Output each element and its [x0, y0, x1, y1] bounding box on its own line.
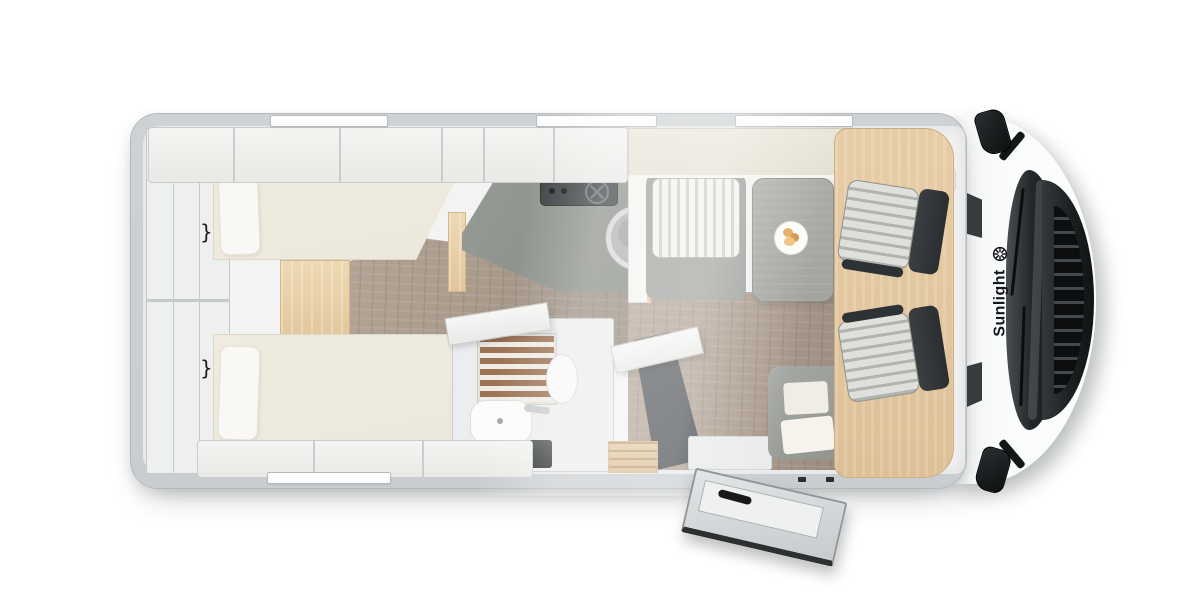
entry-step — [783, 381, 829, 415]
cabinet-divider — [233, 128, 235, 182]
wooden-steps — [608, 441, 658, 473]
plate-with-food — [775, 222, 807, 254]
pillow — [217, 345, 260, 440]
window-marker — [267, 472, 391, 484]
croissant — [784, 237, 795, 246]
door-hinge-icon — [798, 477, 806, 482]
brand-label: Sunlight — [958, 260, 1044, 346]
cabinet-divider — [483, 128, 485, 182]
grille-icon — [1054, 206, 1084, 394]
bedroom-step — [280, 260, 350, 342]
floorplan-stage: Sunlight } } — [0, 0, 1200, 600]
window-marker — [270, 115, 388, 127]
entry-floor — [688, 436, 772, 470]
window-marker — [536, 115, 657, 127]
entry-step — [780, 415, 835, 454]
swivel-seat-driver — [833, 298, 952, 405]
toilet — [546, 354, 578, 404]
seat-cushion — [837, 311, 921, 403]
cabinet-divider — [422, 441, 424, 477]
brand-label-text: Sunlight — [992, 269, 1010, 336]
basin-drain — [497, 418, 503, 424]
reading-lamp-icon: } — [200, 219, 213, 245]
cabinet-divider — [553, 128, 555, 182]
washbasin — [470, 400, 532, 444]
drop-down-bed-panel — [628, 128, 858, 178]
overhead-cabinets-top — [148, 127, 628, 183]
burner-grate-icon — [585, 180, 609, 204]
front-hood — [1042, 180, 1094, 420]
shower-tray — [478, 334, 556, 404]
bench-cushion — [652, 178, 740, 258]
door-hinge-icon — [826, 477, 834, 482]
stove-knob — [561, 188, 567, 194]
seat-cushion — [836, 179, 920, 271]
kitchen-side-panel — [448, 212, 466, 292]
dinette-bench — [646, 174, 746, 300]
stove-knob — [549, 188, 555, 194]
reading-lamp-icon: } — [200, 355, 213, 381]
window-marker — [735, 115, 853, 127]
cabinet-divider — [441, 128, 443, 182]
swivel-seat-passenger — [833, 174, 952, 281]
cabinet-divider — [339, 128, 341, 182]
